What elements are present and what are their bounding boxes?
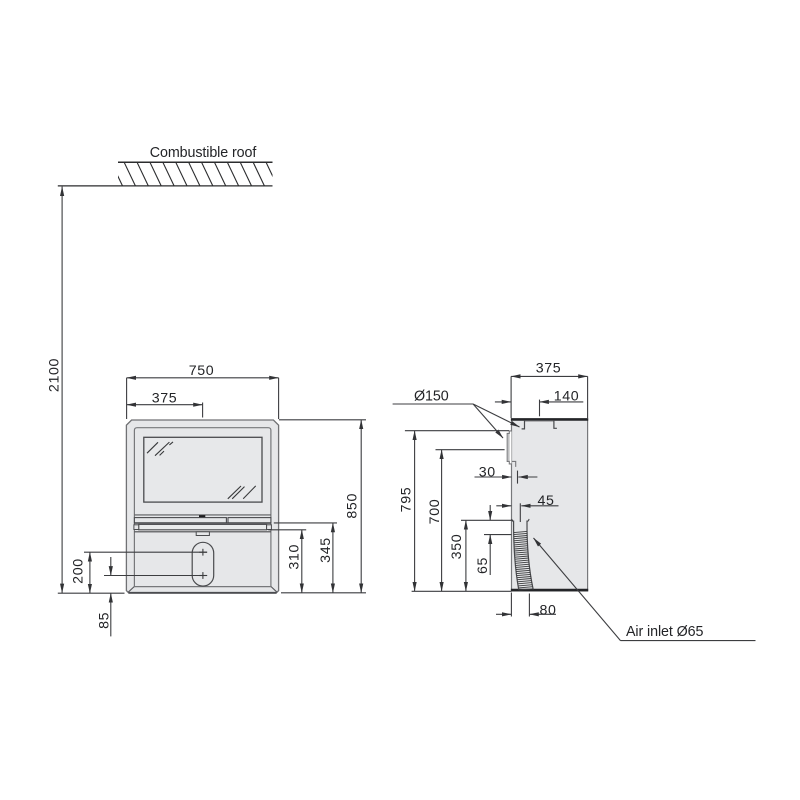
svg-text:2100: 2100 — [46, 358, 62, 392]
svg-text:80: 80 — [539, 603, 556, 619]
svg-text:795: 795 — [399, 487, 415, 513]
svg-text:750: 750 — [189, 363, 215, 379]
svg-text:345: 345 — [318, 537, 334, 563]
svg-text:30: 30 — [479, 464, 496, 480]
svg-text:Ø150: Ø150 — [414, 389, 449, 405]
svg-text:Air inlet Ø65: Air inlet Ø65 — [626, 624, 704, 640]
svg-text:375: 375 — [152, 391, 178, 407]
svg-text:200: 200 — [71, 558, 87, 584]
svg-text:350: 350 — [449, 534, 465, 560]
svg-text:Combustible roof: Combustible roof — [150, 145, 257, 161]
svg-text:140: 140 — [554, 389, 580, 405]
svg-text:850: 850 — [345, 493, 361, 519]
svg-text:310: 310 — [287, 544, 303, 570]
svg-text:45: 45 — [537, 493, 554, 509]
svg-text:700: 700 — [427, 499, 443, 525]
svg-text:65: 65 — [475, 557, 491, 574]
svg-text:375: 375 — [536, 360, 562, 376]
svg-text:85: 85 — [96, 612, 112, 629]
